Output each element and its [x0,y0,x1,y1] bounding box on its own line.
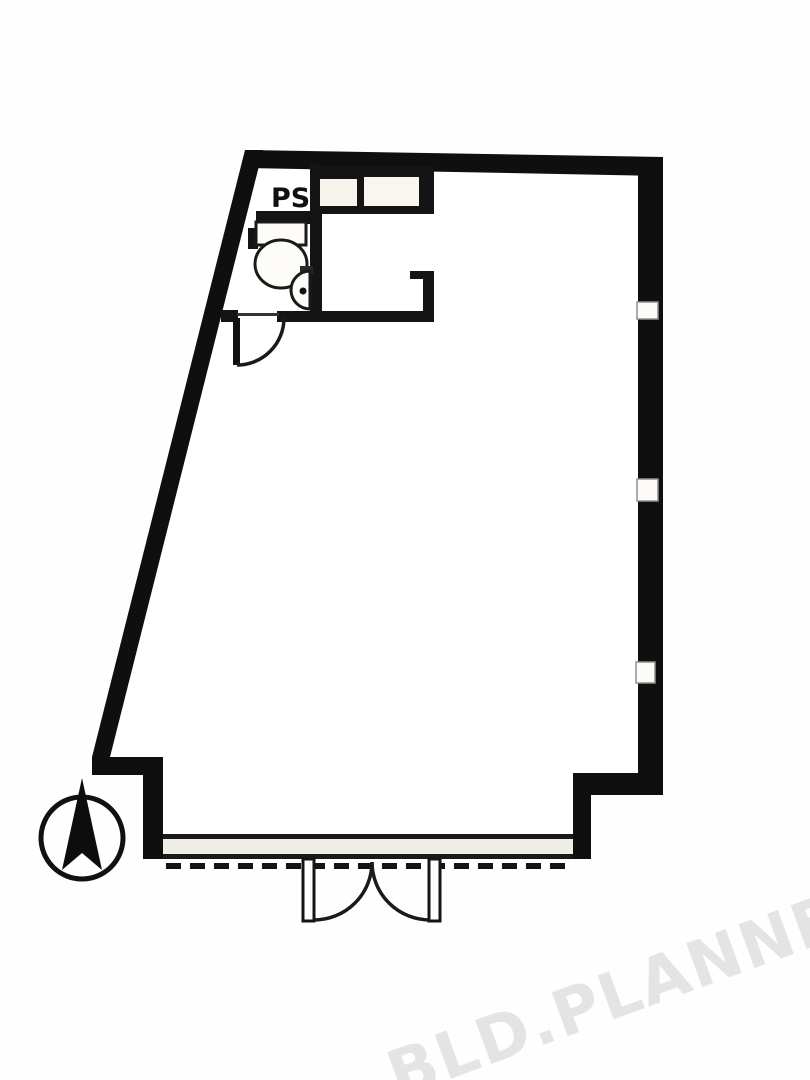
wall-left-step-vertical [143,775,163,859]
storefront-band [163,839,573,854]
ps-shaft-label: PS [271,183,310,214]
basin-drain-dot [300,288,307,295]
north-arrow-compass [41,778,123,879]
watermark: BLD.PLANNER [378,863,810,1080]
kitchenette-partial-wall-cap [410,271,434,279]
storefront [163,834,573,921]
entrance-door-left-leaf [303,859,314,921]
wall-right-step-vertical [573,773,591,859]
storefront-lower-line [163,854,573,859]
entrance-door-right-arc [372,862,430,920]
floor-plan-drawing: PS BLD.PLANNER [0,0,810,1080]
kitchen-counter-unit-1 [320,179,357,206]
entrance-door-right-leaf [429,859,440,921]
wc-door-sill [237,313,279,316]
window-opening-1 [637,302,658,319]
wc-door-leaf [233,318,240,365]
floor-area [108,168,645,850]
entrance-door-left-arc [314,862,372,920]
wall-left-step-horizontal [92,757,163,775]
kitchen-counter-unit-2 [364,177,419,206]
window-opening-2 [637,479,658,501]
floor-plan-page: PS BLD.PLANNER [0,0,810,1080]
north-arrow [62,778,102,870]
kitchenette-bottom-wall [277,311,434,322]
wall-right [638,157,663,795]
window-opening-3 [636,662,655,683]
storefront-upper-line [163,834,573,839]
